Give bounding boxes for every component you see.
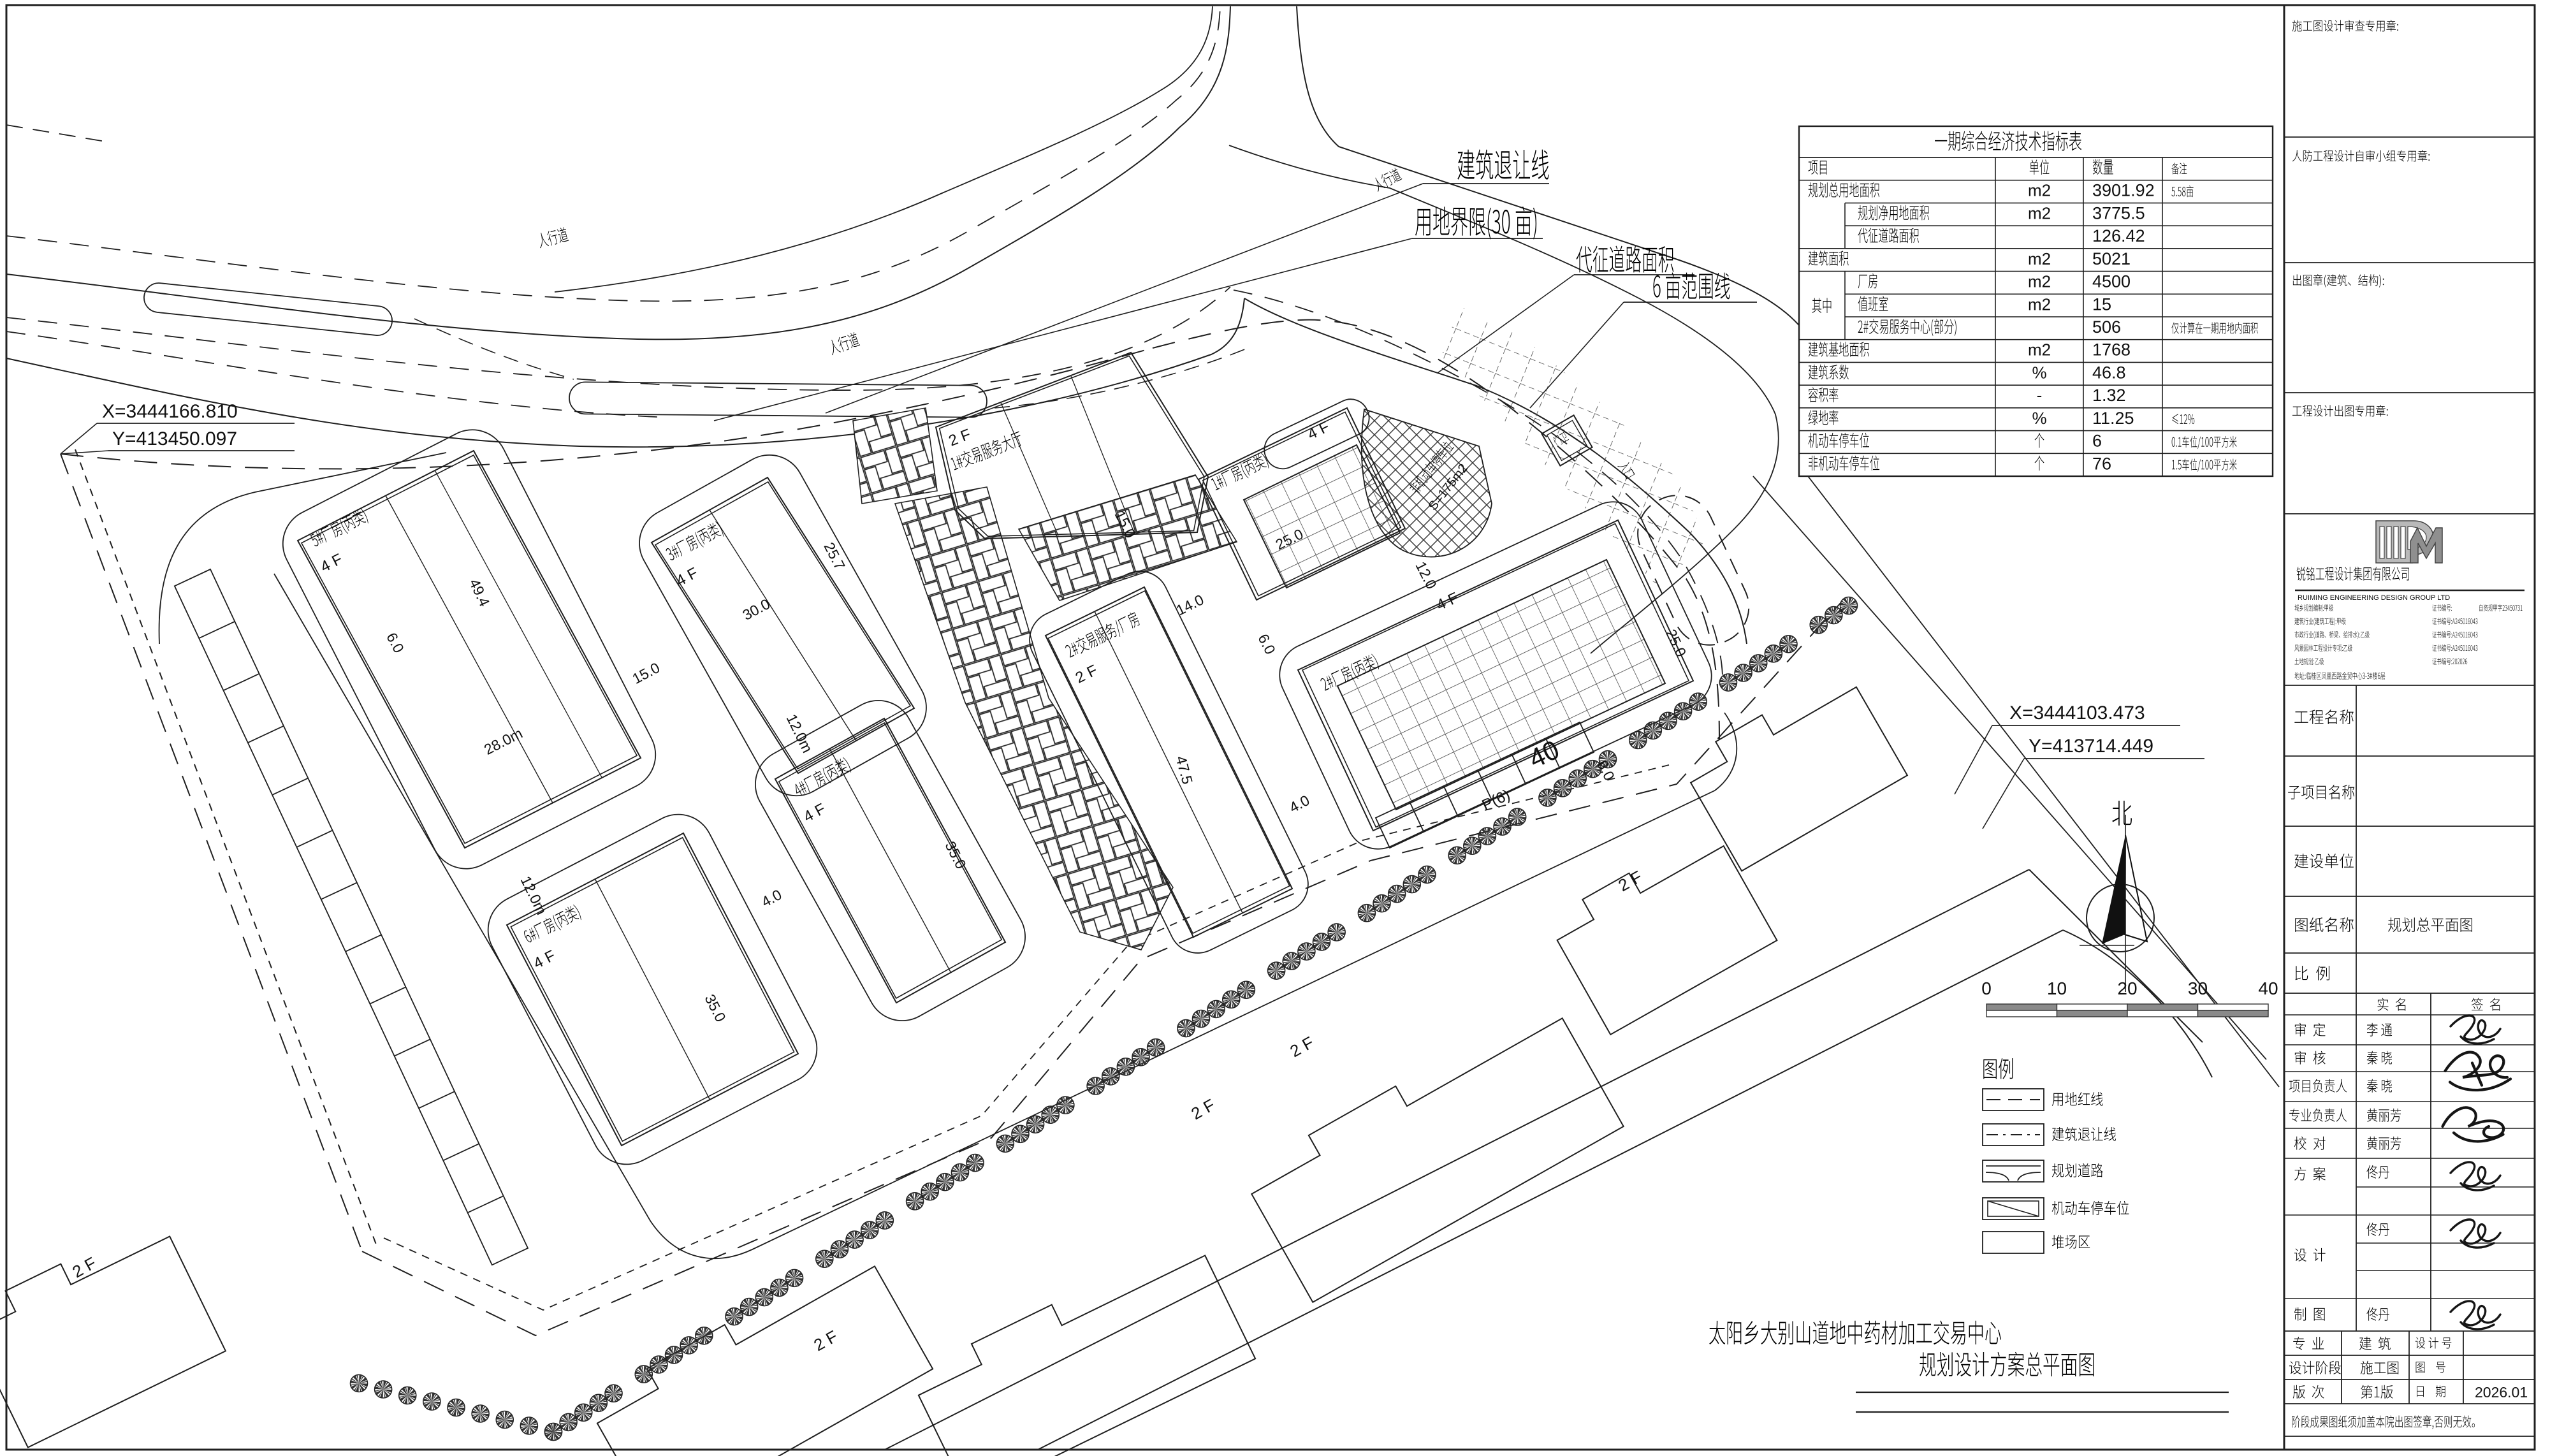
svg-text:126.42: 126.42 [2092,226,2145,245]
svg-text:11.25: 11.25 [2092,409,2134,428]
svg-text:%: % [2032,409,2046,428]
svg-text:30: 30 [2188,979,2208,998]
svg-text:15: 15 [2092,295,2111,314]
svg-text:10: 10 [2047,979,2067,998]
svg-text:m2: m2 [2028,340,2051,360]
svg-text:3901.92: 3901.92 [2092,181,2155,200]
svg-text:RUIMING ENGINEERING DESIGN GRO: RUIMING ENGINEERING DESIGN GROUP LTD [2298,594,2450,602]
svg-text:m2: m2 [2028,295,2051,314]
svg-text:40: 40 [2258,979,2278,998]
svg-text:Y=413450.097: Y=413450.097 [112,428,237,449]
svg-text:5021: 5021 [2092,249,2131,268]
svg-text:-: - [2037,386,2043,405]
svg-text:46.8: 46.8 [2092,363,2126,382]
svg-text:m2: m2 [2028,181,2051,200]
svg-text:1.32: 1.32 [2092,386,2126,405]
svg-text:0: 0 [1981,979,1992,998]
svg-text:6: 6 [2092,432,2102,451]
svg-text:m2: m2 [2028,203,2051,222]
svg-text:X=3444103.473: X=3444103.473 [2009,703,2145,724]
svg-text:506: 506 [2092,317,2121,337]
svg-text:2026.01: 2026.01 [2475,1384,2528,1401]
svg-text:m2: m2 [2028,272,2051,291]
svg-text:%: % [2032,363,2046,382]
svg-text:20: 20 [2117,979,2137,998]
svg-text:m2: m2 [2028,249,2051,268]
svg-text:X=3444166.810: X=3444166.810 [102,401,238,422]
svg-text:76: 76 [2092,454,2111,473]
svg-text:4500: 4500 [2092,272,2131,291]
svg-text:3775.5: 3775.5 [2092,203,2145,222]
svg-text:1768: 1768 [2092,340,2131,360]
svg-text:Y=413714.449: Y=413714.449 [2029,736,2153,757]
